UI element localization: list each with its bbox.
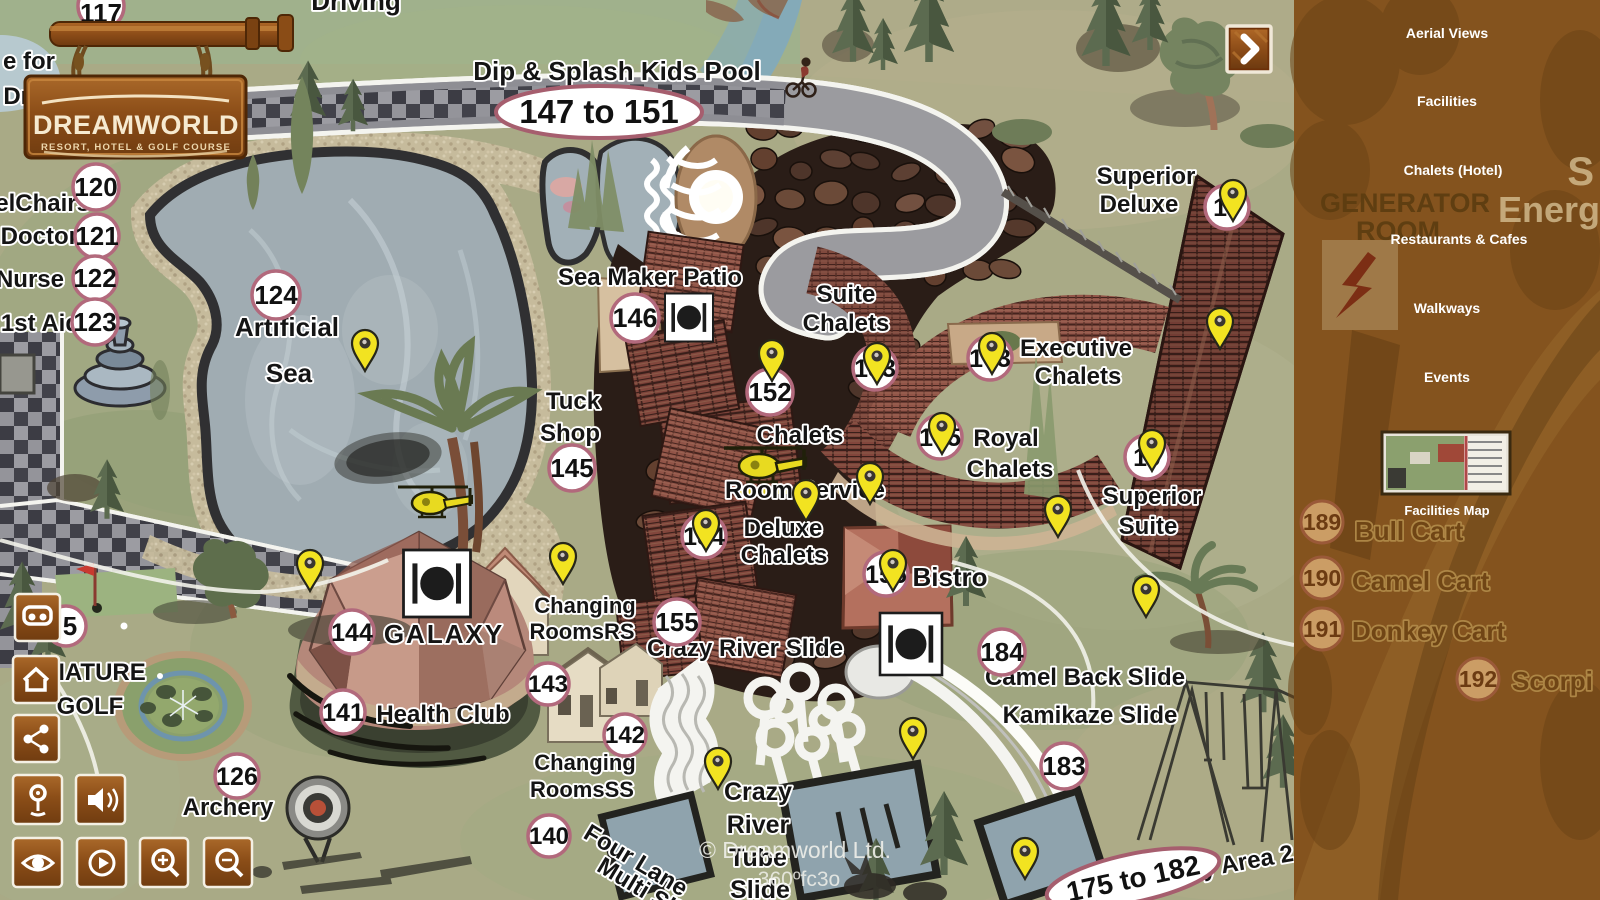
svg-text:120: 120 bbox=[74, 172, 117, 202]
svg-text:155: 155 bbox=[655, 607, 698, 637]
svg-text:S: S bbox=[1567, 150, 1594, 194]
svg-text:183: 183 bbox=[1042, 751, 1085, 781]
svg-text:Health Club: Health Club bbox=[376, 701, 509, 728]
svg-text:192: 192 bbox=[1459, 666, 1497, 692]
svg-text:140: 140 bbox=[529, 823, 569, 850]
svg-text:122: 122 bbox=[73, 263, 116, 293]
svg-text:126: 126 bbox=[216, 763, 258, 791]
svg-text:Sea Maker Patio: Sea Maker Patio bbox=[558, 264, 742, 291]
svg-text:123: 123 bbox=[73, 307, 116, 337]
svg-text:GOLF: GOLF bbox=[57, 693, 124, 720]
svg-text:e for: e for bbox=[3, 48, 55, 75]
svg-text:Suite: Suite bbox=[817, 281, 876, 308]
svg-text:Kamikaze Slide: Kamikaze Slide bbox=[1003, 702, 1178, 729]
svg-text:Nurse: Nurse bbox=[0, 266, 64, 293]
svg-text:190: 190 bbox=[1303, 565, 1341, 591]
svg-text:River: River bbox=[727, 811, 790, 839]
svg-text:124: 124 bbox=[254, 280, 298, 310]
svg-text:Chalets (Hotel): Chalets (Hotel) bbox=[1404, 162, 1503, 178]
svg-text:Walkways: Walkways bbox=[1414, 300, 1481, 316]
svg-text:Crazy: Crazy bbox=[724, 778, 792, 806]
svg-text:Bull Cart: Bull Cart bbox=[1355, 516, 1464, 546]
svg-text:Donkey Cart: Donkey Cart bbox=[1352, 616, 1505, 646]
svg-text:144: 144 bbox=[331, 619, 373, 647]
svg-text:Sea: Sea bbox=[266, 358, 313, 388]
svg-text:191: 191 bbox=[1303, 616, 1342, 642]
svg-text:Doctor: Doctor bbox=[1, 223, 78, 250]
svg-text:Changing: Changing bbox=[534, 593, 635, 618]
svg-text:Energ: Energ bbox=[1498, 189, 1600, 230]
svg-text:Aerial Views: Aerial Views bbox=[1406, 25, 1488, 41]
svg-text:Royal: Royal bbox=[973, 425, 1038, 452]
svg-text:Chalets: Chalets bbox=[1035, 363, 1122, 390]
svg-text:Events: Events bbox=[1424, 369, 1470, 385]
svg-text:Facilities Map: Facilities Map bbox=[1404, 503, 1489, 518]
svg-text:189: 189 bbox=[1303, 509, 1341, 535]
svg-text:Superior: Superior bbox=[1103, 483, 1202, 510]
svg-text:Bistro: Bistro bbox=[912, 562, 987, 592]
svg-text:Dip & Splash Kids Pool: Dip & Splash Kids Pool bbox=[473, 56, 760, 86]
svg-text:Scorpi: Scorpi bbox=[1512, 666, 1593, 696]
svg-text:Facilities: Facilities bbox=[1417, 93, 1477, 109]
svg-text:Restaurants & Cafes: Restaurants & Cafes bbox=[1391, 231, 1528, 247]
svg-text:GENERATOR: GENERATOR bbox=[1320, 188, 1490, 218]
svg-text:146: 146 bbox=[612, 303, 657, 333]
svg-text:143: 143 bbox=[528, 671, 568, 698]
svg-text:Driving: Driving bbox=[311, 0, 401, 16]
svg-text:Suite: Suite bbox=[1119, 513, 1178, 540]
svg-text:RoomsSS: RoomsSS bbox=[530, 777, 634, 802]
svg-text:Deluxe: Deluxe bbox=[744, 515, 823, 542]
svg-text:DREAMWORLD: DREAMWORLD bbox=[33, 110, 239, 140]
svg-text:Executive: Executive bbox=[1020, 335, 1132, 362]
svg-text:152: 152 bbox=[748, 377, 791, 407]
svg-text:360ºfc3o: 360ºfc3o bbox=[758, 868, 840, 891]
svg-text:GALAXY: GALAXY bbox=[384, 619, 504, 649]
svg-text:Chalets: Chalets bbox=[757, 422, 844, 449]
svg-text:RoomsRS: RoomsRS bbox=[529, 619, 634, 644]
svg-text:1st Aid: 1st Aid bbox=[1, 310, 80, 337]
svg-text:© Dreamworld Ltd.: © Dreamworld Ltd. bbox=[699, 837, 891, 863]
svg-text:Camel Cart: Camel Cart bbox=[1352, 566, 1490, 596]
svg-text:184: 184 bbox=[980, 637, 1024, 667]
svg-text:5: 5 bbox=[63, 611, 77, 641]
svg-text:RESORT, HOTEL & GOLF COURSE: RESORT, HOTEL & GOLF COURSE bbox=[41, 142, 231, 153]
svg-text:145: 145 bbox=[550, 453, 593, 483]
svg-text:Deluxe: Deluxe bbox=[1100, 191, 1179, 218]
svg-text:Shop: Shop bbox=[540, 420, 600, 447]
svg-text:147 to 151: 147 to 151 bbox=[519, 93, 679, 130]
svg-text:Superior: Superior bbox=[1097, 163, 1196, 190]
svg-text:Tuck: Tuck bbox=[546, 388, 601, 415]
svg-text:141: 141 bbox=[322, 699, 364, 727]
svg-text:121: 121 bbox=[75, 221, 118, 251]
svg-text:Chalets: Chalets bbox=[967, 456, 1054, 483]
svg-text:142: 142 bbox=[605, 722, 645, 749]
svg-text:Chalets: Chalets bbox=[803, 310, 890, 337]
svg-text:Chalets: Chalets bbox=[741, 542, 828, 569]
